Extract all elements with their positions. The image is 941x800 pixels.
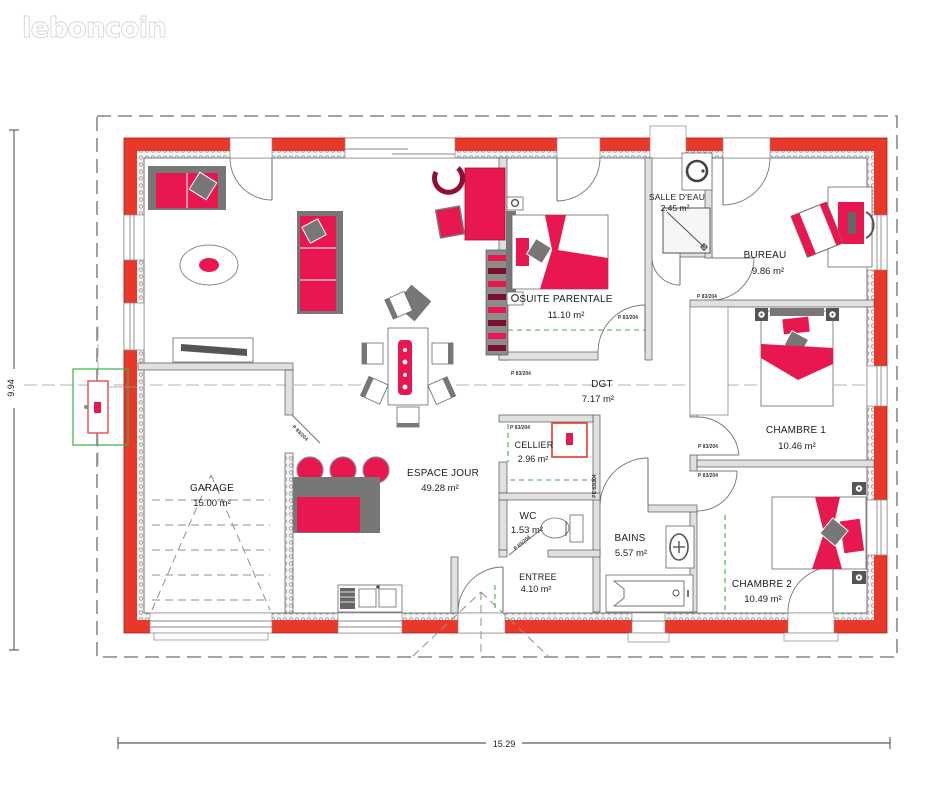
bathtub-icon xyxy=(606,575,693,612)
door-tag-garage: P 83/204 xyxy=(291,424,309,442)
leboncoin-logo: leboncoin xyxy=(22,11,166,44)
door-tag-wc: P 83/204 xyxy=(513,534,532,552)
door-tag-chambre2: P 83/204 xyxy=(698,473,718,479)
kitchen-island-icon xyxy=(293,457,389,533)
suite-bed-icon xyxy=(506,197,608,305)
room-label-dgt: DGT xyxy=(591,379,613,390)
chambre1-bed-icon xyxy=(755,308,839,406)
room-label-cellier: CELLIER xyxy=(515,440,554,450)
garage-door xyxy=(150,613,272,640)
water-heater-icon xyxy=(552,423,587,457)
terrace-door xyxy=(230,138,272,200)
width-dimension-label: 15.29 xyxy=(493,739,516,749)
room-label-espace-jour: ESPACE JOUR xyxy=(407,468,479,479)
room-label-suite-parentale: SUITE PARENTALE xyxy=(519,294,612,305)
room-label-bureau: BUREAU xyxy=(744,250,787,261)
door-tag-chambre1: P 83/204 xyxy=(698,444,718,450)
chambre2-door-window xyxy=(784,567,838,641)
room-area-bureau: 9.86 m² xyxy=(752,266,784,277)
dimension-height: 9.94 xyxy=(6,130,19,650)
floor-plan: GARAGE 15.00 m² ESPACE JOUR 49.28 m² SUI… xyxy=(0,0,941,800)
room-label-bains: BAINS xyxy=(614,533,645,544)
room-label-garage: GARAGE xyxy=(190,483,234,494)
chambre2-window xyxy=(867,500,887,555)
dining-table-icon xyxy=(360,291,455,427)
kitchen-sink-icon xyxy=(338,585,402,612)
bains-window xyxy=(628,613,669,642)
room-area-cellier: 2.96 m² xyxy=(518,454,549,464)
room-label-salle-deau: SALLE D'EAU xyxy=(649,192,705,202)
chambre2-bed-icon xyxy=(772,482,866,584)
door-tag-suite: P 83/204 xyxy=(618,315,638,321)
bureau-door-window xyxy=(723,138,770,205)
room-label-chambre1: CHAMBRE 1 xyxy=(766,425,826,436)
room-area-dgt: 7.17 m² xyxy=(582,394,614,405)
sofa-icon xyxy=(148,166,226,210)
bay-window xyxy=(345,138,455,158)
room-label-wc: WC xyxy=(519,511,536,522)
washing-machine-icon xyxy=(682,153,712,190)
height-dimension-label: 9.94 xyxy=(6,379,16,397)
rug-icon xyxy=(180,245,238,285)
dimension-width: 15.29 xyxy=(118,737,890,749)
door-tag-dgt: P 83/204 xyxy=(511,371,531,377)
room-area-salle-deau: 2.45 m² xyxy=(661,203,690,213)
living-window-1 xyxy=(124,215,144,260)
room-area-garage: 15.00 m² xyxy=(193,498,231,509)
bureau-desk-icon xyxy=(791,187,873,267)
kitchen-window xyxy=(338,613,402,633)
living-window-2 xyxy=(124,303,144,350)
tv-stand-icon xyxy=(173,338,253,362)
heat-pump-icon xyxy=(73,369,137,445)
garage-marks xyxy=(152,475,270,610)
speaker-icon xyxy=(852,571,866,584)
door-tag-bains: PE 63/204 xyxy=(592,474,598,498)
room-area-suite-parentale: 11.10 m² xyxy=(548,310,585,321)
shower-icon xyxy=(663,208,710,253)
bains-sink-icon xyxy=(666,526,694,568)
speaker-icon xyxy=(755,308,768,321)
room-area-chambre1: 10.46 m² xyxy=(778,441,816,452)
sofa-2-icon xyxy=(297,211,343,314)
toilet-icon xyxy=(541,515,583,542)
room-area-chambre2: 10.49 m² xyxy=(744,594,782,605)
room-area-entree: 4.10 m² xyxy=(521,584,552,594)
door-tag-cellier: P 83/204 xyxy=(510,425,530,431)
suite-terrace-door xyxy=(557,138,600,201)
closet-icon xyxy=(690,307,728,415)
room-label-entree: ENTREE xyxy=(519,572,557,582)
room-area-bains: 5.57 m² xyxy=(615,548,647,559)
speaker-icon xyxy=(852,482,866,495)
speaker-icon xyxy=(826,308,839,321)
floor-plan-page: GARAGE 15.00 m² ESPACE JOUR 49.28 m² SUI… xyxy=(0,0,941,800)
room-area-espace-jour: 49.28 m² xyxy=(421,483,459,494)
door-tag-bureau: P 83/204 xyxy=(697,294,717,300)
wardrobe-icon xyxy=(486,250,508,355)
room-label-chambre2: CHAMBRE 2 xyxy=(732,579,792,590)
nightstand-icon xyxy=(507,197,523,210)
chambre1-window xyxy=(867,366,887,406)
